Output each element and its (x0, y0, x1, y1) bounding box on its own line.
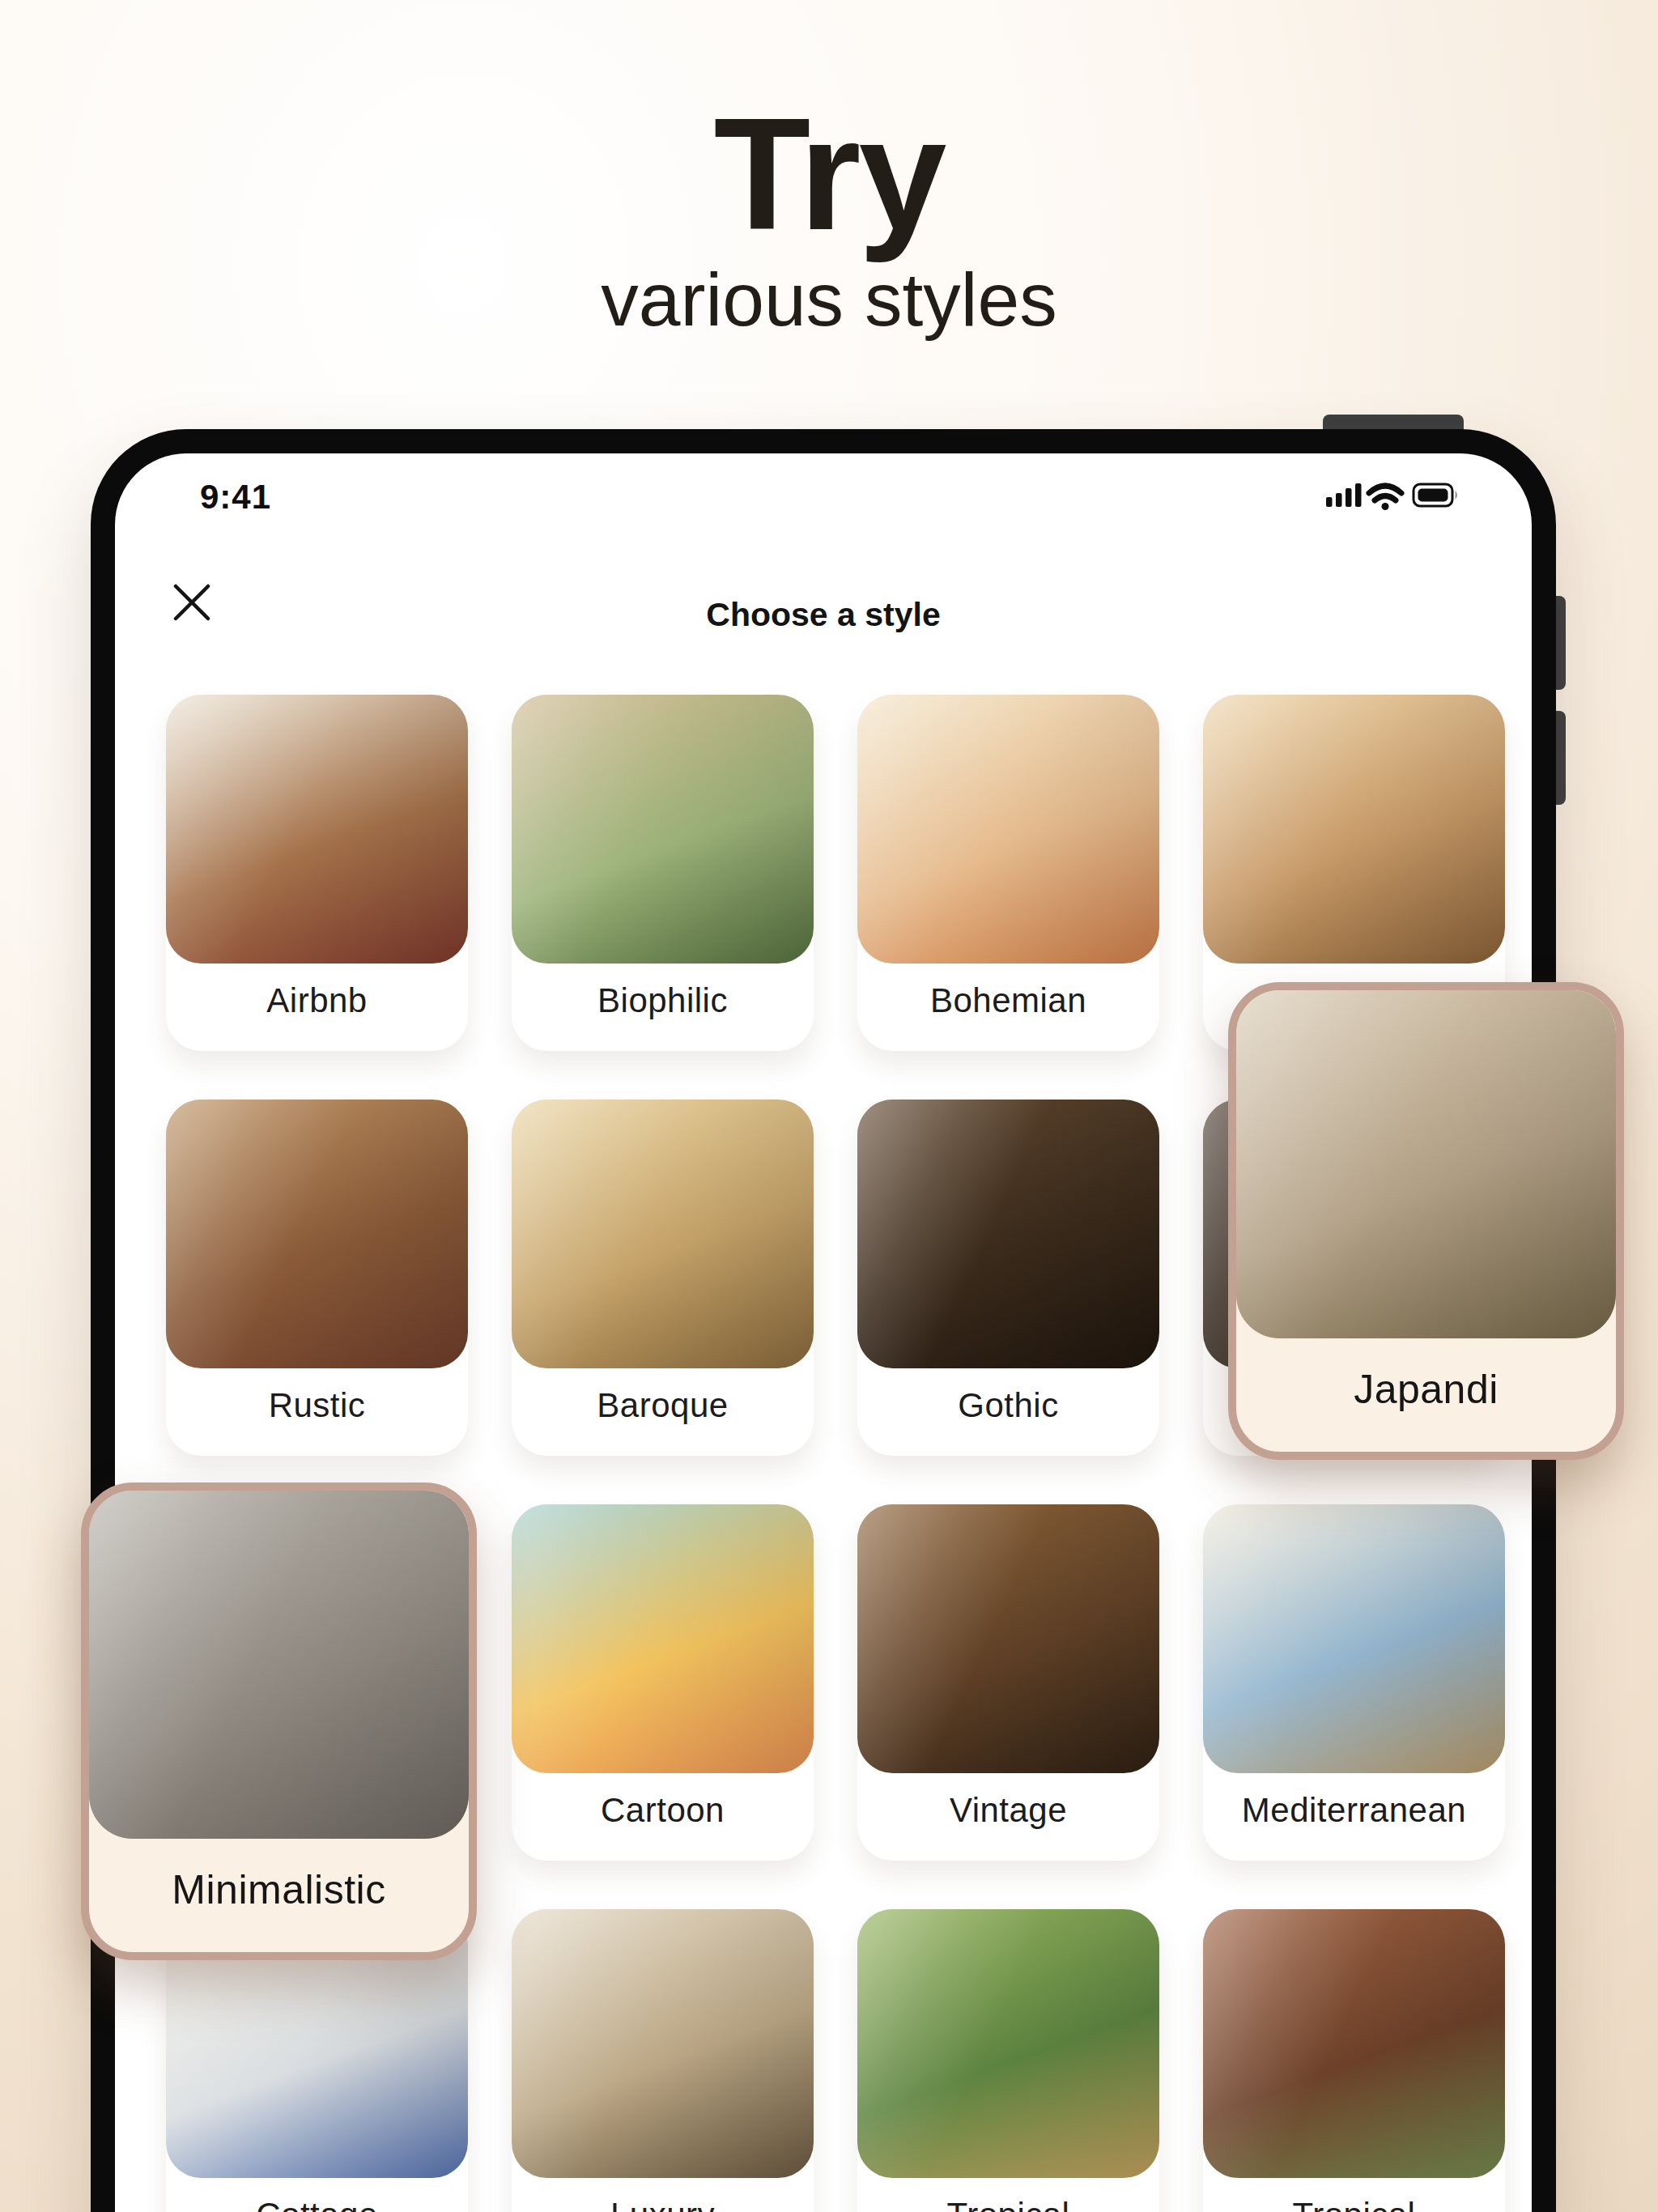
style-label-tropical: Tropical (857, 2178, 1159, 2212)
style-image-bohemian (857, 695, 1159, 963)
style-label-baroque: Baroque (512, 1368, 814, 1425)
style-image-airbnb (166, 695, 468, 963)
style-card-cartoon[interactable]: Cartoon (512, 1504, 814, 1861)
style-image-luxury (512, 1909, 814, 2178)
style-card-vintage[interactable]: Vintage (857, 1504, 1159, 1861)
style-label-minimalistic: Minimalistic (89, 1839, 469, 1913)
style-label-airbnb: Airbnb (166, 963, 468, 1020)
style-card-luxury[interactable]: Luxury (512, 1909, 814, 2212)
style-label-vintage: Vintage (857, 1773, 1159, 1830)
style-label-luxury: Luxury (512, 2178, 814, 2212)
style-label-cottage: Cottage (166, 2178, 468, 2212)
hero-subtitle: various styles (0, 262, 1658, 338)
style-card-bohemian[interactable]: Bohemian (857, 695, 1159, 1051)
style-label-gothic: Gothic (857, 1368, 1159, 1425)
style-image-baroque (512, 1100, 814, 1368)
style-card-mediterranean[interactable]: Mediterranean (1203, 1504, 1505, 1861)
style-card-gothic[interactable]: Gothic (857, 1100, 1159, 1456)
style-label-bohemian: Bohemian (857, 963, 1159, 1020)
style-image-rustic (166, 1100, 468, 1368)
style-image-japandi (1236, 990, 1616, 1338)
style-image-gothic (857, 1100, 1159, 1368)
style-card-japandi[interactable]: Japandi (1228, 982, 1624, 1460)
style-card-minimalistic[interactable]: Minimalistic (81, 1482, 477, 1960)
style-card-biophilic[interactable]: Biophilic (512, 695, 814, 1051)
style-label-covered-1 (1203, 963, 1505, 981)
style-image-tropical (857, 1909, 1159, 2178)
style-label-mediterranean: Mediterranean (1203, 1773, 1505, 1830)
style-label-japandi: Japandi (1236, 1338, 1616, 1413)
style-image-cartoon (512, 1504, 814, 1773)
style-label-rustic: Rustic (166, 1368, 468, 1425)
style-image-mediterranean (1203, 1504, 1505, 1773)
style-card-tropical-2[interactable]: Tropical (1203, 1909, 1505, 2212)
style-image-tropical-2 (1203, 1909, 1505, 2178)
style-label-tropical-2: Tropical (1203, 2178, 1505, 2212)
style-card-airbnb[interactable]: Airbnb (166, 695, 468, 1051)
hero-title: Try (0, 96, 1658, 254)
hero: Try various styles (0, 0, 1658, 338)
style-image-covered-1 (1203, 695, 1505, 963)
style-card-tropical[interactable]: Tropical (857, 1909, 1159, 2212)
style-card-rustic[interactable]: Rustic (166, 1100, 468, 1456)
style-image-vintage (857, 1504, 1159, 1773)
promo-page: Try various styles 9:41 (0, 0, 1658, 2212)
style-image-biophilic (512, 695, 814, 963)
style-label-cartoon: Cartoon (512, 1773, 814, 1830)
style-label-biophilic: Biophilic (512, 963, 814, 1020)
style-image-minimalistic (89, 1491, 469, 1839)
style-card-baroque[interactable]: Baroque (512, 1100, 814, 1456)
